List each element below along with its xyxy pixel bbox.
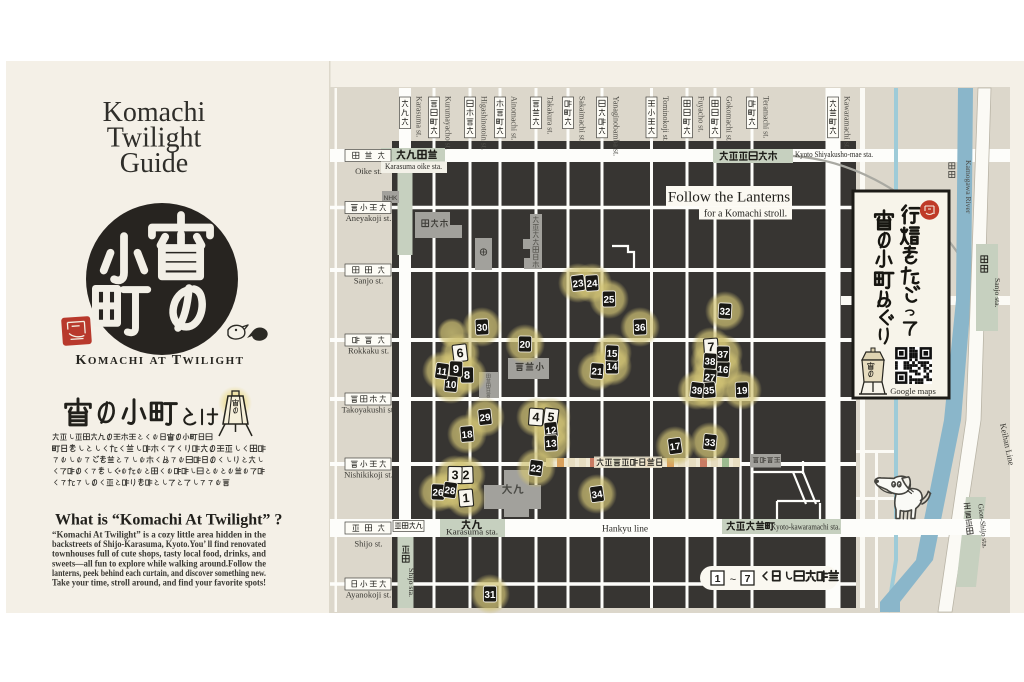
svg-text:Fuyacho st.: Fuyacho st. xyxy=(697,96,706,132)
svg-text:16: 16 xyxy=(717,364,730,376)
svg-text:39: 39 xyxy=(691,385,704,397)
svg-text:Rokkaku st.: Rokkaku st. xyxy=(348,346,389,356)
svg-text:31: 31 xyxy=(485,590,496,601)
svg-text:28: 28 xyxy=(444,485,457,497)
svg-text:Google maps: Google maps xyxy=(890,386,936,396)
svg-text:Guide: Guide xyxy=(120,148,188,179)
svg-text:34: 34 xyxy=(591,489,604,501)
svg-text:Karasuma sta.: Karasuma sta. xyxy=(446,528,498,537)
svg-text:15: 15 xyxy=(606,349,618,361)
svg-text:1: 1 xyxy=(715,573,721,585)
svg-text:Kurumayacho st.: Kurumayacho st. xyxy=(444,96,453,150)
svg-text:11: 11 xyxy=(436,366,448,378)
svg-text:9: 9 xyxy=(453,364,460,376)
svg-text:KOMACHI AT TWILIGHT: KOMACHI AT TWILIGHT xyxy=(76,353,245,368)
svg-text:Karasuma oike sta.: Karasuma oike sta. xyxy=(385,162,442,171)
svg-text:10: 10 xyxy=(445,379,457,391)
svg-text:Sanjo st.: Sanjo st. xyxy=(354,276,384,286)
svg-text:NHK: NHK xyxy=(384,195,398,202)
svg-text:32: 32 xyxy=(719,307,731,319)
svg-text:Shijo sta.: Shijo sta. xyxy=(407,568,416,597)
svg-text:lanterns, peek behind each cur: lanterns, peek behind each curtain, and … xyxy=(52,569,266,579)
svg-text:Gokomachi st.: Gokomachi st. xyxy=(725,96,734,142)
svg-text:Hankyu line: Hankyu line xyxy=(602,525,648,535)
svg-text:36: 36 xyxy=(634,323,646,334)
svg-text:Follow the Lanterns: Follow the Lanterns xyxy=(668,189,790,206)
svg-text:3: 3 xyxy=(451,468,458,482)
svg-text:backstreets of Shijo-Karasuma,: backstreets of Shijo-Karasuma, Kyoto.You… xyxy=(52,540,267,550)
svg-text:Nishikikoji st.: Nishikikoji st. xyxy=(344,470,393,480)
svg-text:Shijo st.: Shijo st. xyxy=(354,539,382,549)
svg-text:14: 14 xyxy=(607,362,618,373)
svg-text:townhouses full of cute shops,: townhouses full of cute shops, tasty loc… xyxy=(52,550,267,560)
svg-text:Kawaramachi st.: Kawaramachi st. xyxy=(843,96,852,149)
svg-text:35: 35 xyxy=(703,385,715,397)
svg-text:Kyoto-kawaramachi sta.: Kyoto-kawaramachi sta. xyxy=(771,523,840,532)
svg-text:“Komachi At Twilight” is a coz: “Komachi At Twilight” is a cozy little a… xyxy=(52,530,266,541)
svg-text:1: 1 xyxy=(462,491,470,506)
svg-text:17: 17 xyxy=(669,441,682,453)
svg-text:Tominokoji st.: Tominokoji st. xyxy=(661,96,670,142)
svg-text:~: ~ xyxy=(730,574,736,586)
svg-text:30: 30 xyxy=(476,322,488,334)
svg-text:23: 23 xyxy=(572,278,585,290)
svg-text:Yanaginobamba st.: Yanaginobamba st. xyxy=(612,96,621,156)
svg-text:22: 22 xyxy=(530,463,543,475)
svg-text:Sakaimachi st.: Sakaimachi st. xyxy=(578,96,587,142)
svg-text:Sanjo sta.: Sanjo sta. xyxy=(993,278,1002,308)
svg-text:26: 26 xyxy=(432,488,444,499)
svg-text:19: 19 xyxy=(736,386,748,397)
svg-text:Takakura st.: Takakura st. xyxy=(546,96,555,134)
svg-text:7: 7 xyxy=(707,340,715,354)
svg-text:4: 4 xyxy=(532,410,540,424)
svg-text:Karasuma st.: Karasuma st. xyxy=(415,96,424,137)
svg-text:Teramachi st.: Teramachi st. xyxy=(762,96,771,138)
svg-text:2: 2 xyxy=(462,468,469,482)
svg-text:Takoyakushi st.: Takoyakushi st. xyxy=(342,405,396,415)
svg-text:Oike st.: Oike st. xyxy=(355,166,382,176)
svg-text:Higashinotoin st.: Higashinotoin st. xyxy=(480,96,489,150)
svg-text:What is “Komachi At Twilight”: What is “Komachi At Twilight” ? xyxy=(55,512,282,529)
svg-text:38: 38 xyxy=(704,356,716,368)
svg-text:20: 20 xyxy=(519,340,531,351)
svg-text:Ainomachi st.: Ainomachi st. xyxy=(510,96,519,140)
svg-text:21: 21 xyxy=(591,366,603,378)
svg-text:24: 24 xyxy=(586,278,598,290)
svg-text:33: 33 xyxy=(704,437,717,449)
svg-text:29: 29 xyxy=(479,412,492,424)
svg-text:for a Komachi stroll.: for a Komachi stroll. xyxy=(704,209,787,220)
svg-text:13: 13 xyxy=(545,438,557,450)
svg-text:Kamogawa River: Kamogawa River xyxy=(964,160,973,214)
svg-text:8: 8 xyxy=(464,370,470,382)
svg-text:25: 25 xyxy=(603,295,615,306)
svg-text:Aneyakoji st.: Aneyakoji st. xyxy=(346,213,392,223)
svg-text:37: 37 xyxy=(717,350,729,361)
svg-text:7: 7 xyxy=(745,573,751,585)
svg-text:Take your time, stroll around,: Take your time, stroll around, and find … xyxy=(52,579,266,589)
svg-text:18: 18 xyxy=(461,429,473,441)
svg-text:Kyoto Shiyakusho-mae sta.: Kyoto Shiyakusho-mae sta. xyxy=(795,150,873,159)
svg-text:sweets—all fun to explore whil: sweets—all fun to explore while walking … xyxy=(52,559,266,569)
svg-text:Ayanokoji st.: Ayanokoji st. xyxy=(346,590,392,600)
